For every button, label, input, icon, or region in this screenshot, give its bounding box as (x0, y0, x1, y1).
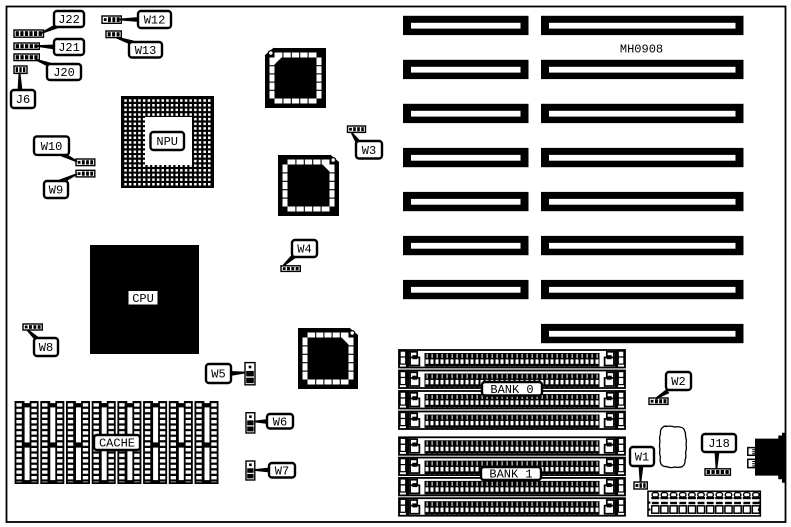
svg-text:W9: W9 (49, 184, 63, 198)
svg-text:W13: W13 (135, 44, 157, 58)
svg-text:MH0908: MH0908 (620, 43, 663, 57)
svg-text:CACHE: CACHE (99, 437, 135, 451)
svg-text:W2: W2 (671, 375, 685, 389)
svg-text:W4: W4 (297, 243, 311, 257)
svg-text:W8: W8 (39, 341, 53, 355)
svg-text:J22: J22 (58, 13, 80, 27)
svg-text:W3: W3 (362, 144, 376, 158)
svg-text:BANK 0: BANK 0 (490, 383, 533, 397)
svg-text:W5: W5 (211, 368, 225, 382)
svg-text:BANK 1: BANK 1 (489, 468, 532, 482)
svg-text:W12: W12 (144, 14, 166, 28)
svg-text:NPU: NPU (156, 135, 178, 149)
svg-text:J20: J20 (53, 66, 75, 80)
svg-text:J21: J21 (58, 41, 80, 55)
svg-text:W1: W1 (635, 451, 649, 465)
svg-text:W6: W6 (273, 415, 287, 429)
svg-text:W10: W10 (41, 140, 63, 154)
svg-text:W7: W7 (275, 464, 289, 478)
svg-text:CPU: CPU (132, 292, 154, 306)
svg-text:J6: J6 (16, 93, 30, 107)
svg-text:J18: J18 (708, 437, 730, 451)
